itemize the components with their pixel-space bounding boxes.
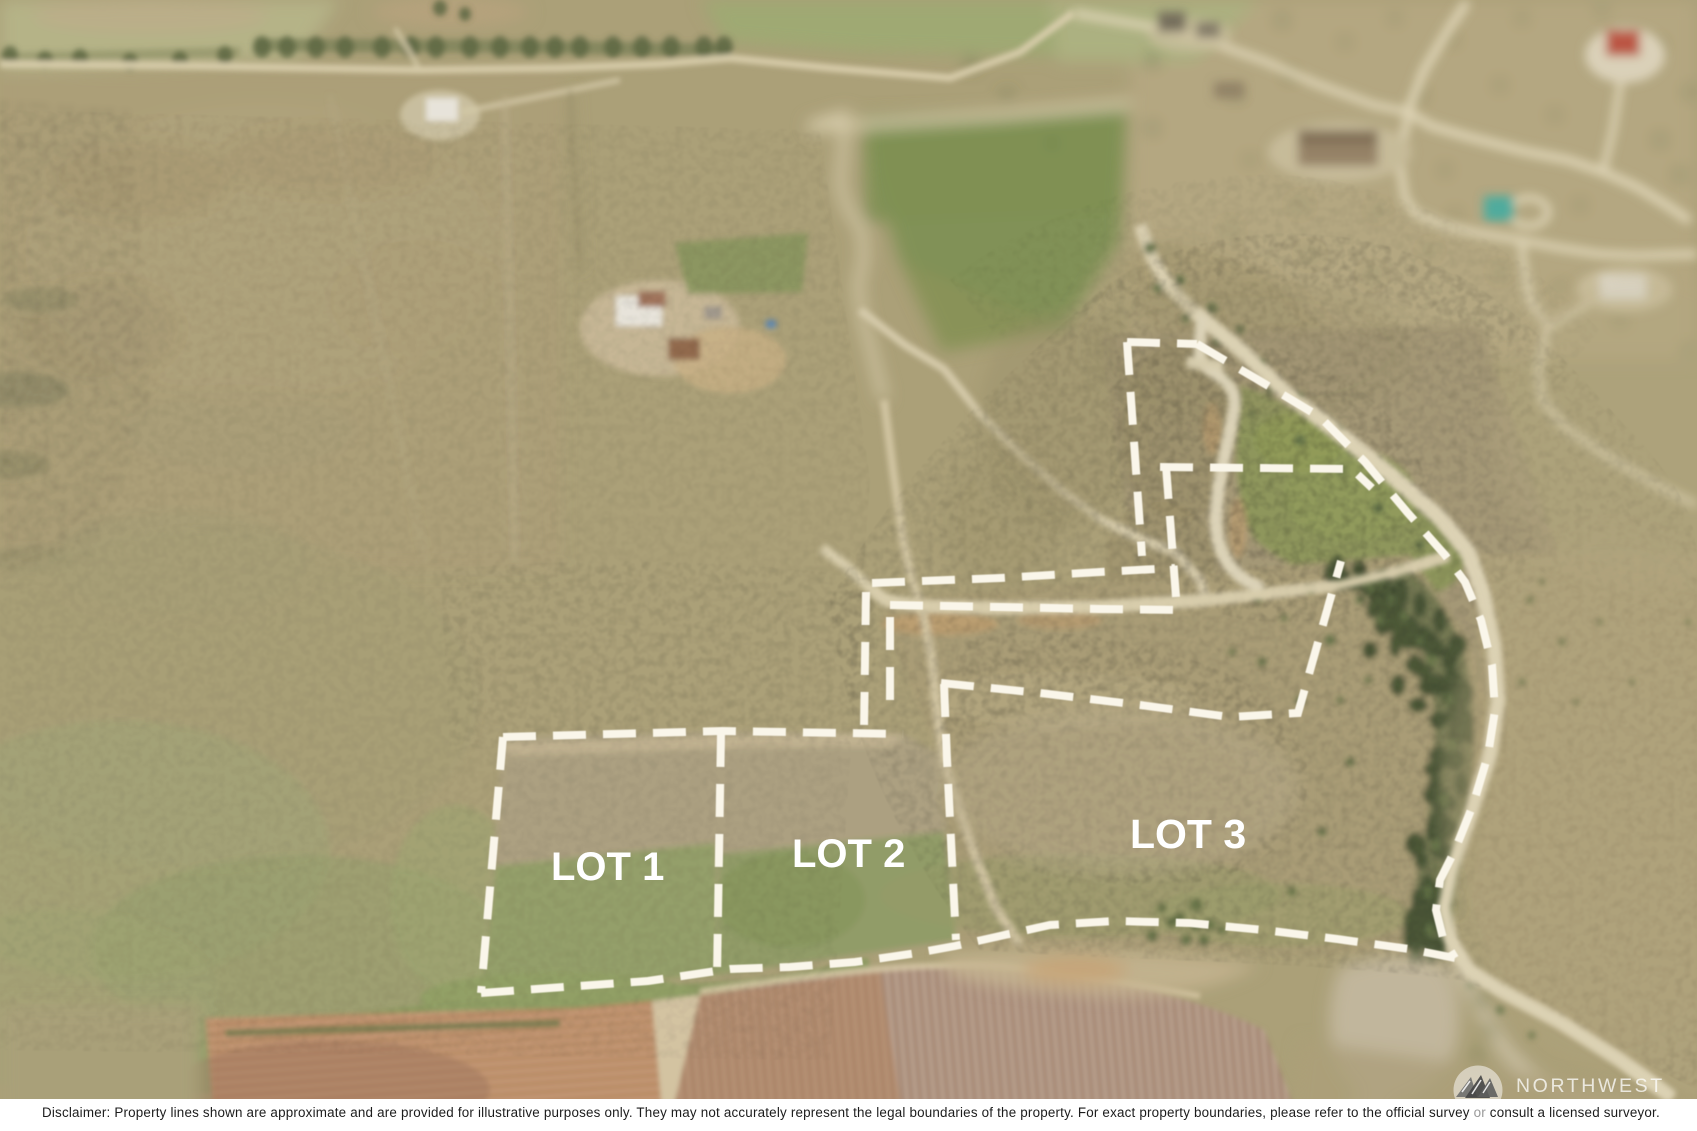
svg-text:LOT 2: LOT 2 — [792, 832, 905, 876]
svg-text:LOT 3: LOT 3 — [1130, 811, 1246, 857]
svg-text:Disclaimer: Property lines sho: Disclaimer: Property lines shown are app… — [42, 1105, 1660, 1120]
svg-text:NORTHWEST: NORTHWEST — [1516, 1075, 1665, 1097]
svg-text:LOT 1: LOT 1 — [551, 845, 664, 889]
